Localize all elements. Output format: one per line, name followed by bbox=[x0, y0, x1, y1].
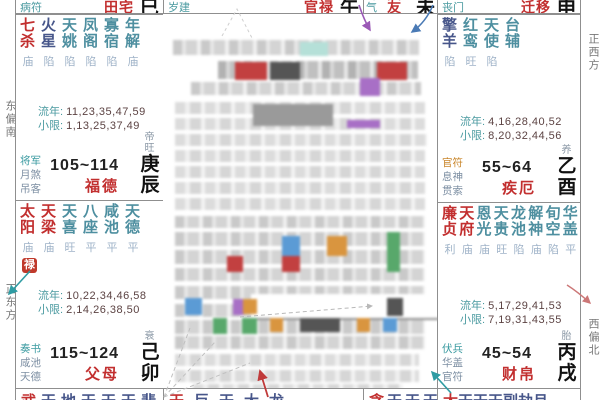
star-name: 七杀 bbox=[20, 18, 36, 50]
xiaoxian-row: 小限: 7,19,31,43,55 bbox=[460, 313, 562, 327]
god-label: 月煞 bbox=[20, 170, 50, 181]
star-brightness: 陷 bbox=[104, 53, 120, 65]
stem-branch: 丙戌 bbox=[557, 342, 577, 384]
palace-strip: 官符息神贯索 55~64 疾厄 bbox=[442, 158, 536, 198]
god-list: 官符息神贯索 bbox=[442, 158, 478, 198]
star-names: 巨天大龙 bbox=[194, 393, 294, 400]
blur-block bbox=[357, 318, 370, 332]
palace-name: 田宅 bbox=[104, 1, 134, 14]
star: 擎羊陷 bbox=[442, 18, 462, 65]
star-brightness: 平 bbox=[125, 239, 141, 251]
blur-block bbox=[185, 298, 202, 315]
stem-branch: 己卯 bbox=[140, 342, 160, 384]
blur-block bbox=[175, 216, 425, 228]
star: 恩光庙 bbox=[477, 206, 493, 253]
god-label: 吊客 bbox=[20, 184, 50, 195]
palace-strip: 丧门 迁移申 bbox=[438, 0, 580, 14]
blur-block bbox=[300, 318, 340, 332]
blur-block bbox=[282, 256, 300, 272]
star-brightness: 庙 bbox=[528, 241, 544, 253]
palace-jie[interactable]: 擎羊陷红鸾旺天使陷台辅 流年: 4,16,28,40,52 小限: 8,20,3… bbox=[437, 14, 581, 203]
star: 龙池陷 bbox=[511, 206, 527, 253]
xiaoxian-row: 小限: 2,14,26,38,50 bbox=[38, 303, 147, 317]
palace-fude[interactable]: 七杀庙火星陷天姚陷凤阁陷寡宿陷年解庙 流年: 11,23,35,47,59 小限… bbox=[15, 14, 164, 201]
palace-strip: 病符 田宅巳 bbox=[16, 0, 163, 14]
stem-branch: 庚辰 bbox=[140, 154, 160, 196]
blur-block bbox=[175, 198, 425, 210]
god-list: 奏书咸池天德 bbox=[20, 344, 50, 384]
lu-transformation-badge: 禄 bbox=[22, 258, 37, 273]
star-name: 擎羊 bbox=[442, 18, 458, 50]
star-list: 擎羊陷红鸾旺天使陷台辅 bbox=[438, 15, 580, 65]
blur-block bbox=[175, 336, 425, 349]
luck-years: 流年: 4,16,28,40,52 小限: 8,20,32,44,56 bbox=[460, 115, 562, 143]
stem-branch: 乙酉 bbox=[557, 156, 577, 198]
blur-block bbox=[377, 62, 407, 80]
star: 天德平 bbox=[125, 204, 145, 251]
star-name: 廉贞 bbox=[442, 206, 458, 238]
star: 咸池平 bbox=[104, 204, 124, 251]
blur-block bbox=[173, 40, 419, 55]
earthly-branch: 巳 bbox=[140, 2, 159, 14]
direction-label-west-northwest: 西偏北 bbox=[585, 318, 600, 357]
star-brightness: 庙 bbox=[125, 53, 141, 65]
life-stage-label: 养 bbox=[562, 145, 573, 156]
star-name: 寡宿 bbox=[104, 18, 120, 50]
blur-block bbox=[191, 82, 421, 95]
star: 火星陷 bbox=[41, 18, 61, 65]
god-label: 奏书 bbox=[20, 344, 50, 355]
star-brightness: 利 bbox=[442, 241, 458, 253]
blur-block bbox=[242, 318, 257, 334]
blur-block bbox=[253, 104, 333, 126]
palace-name: 父母 bbox=[85, 363, 119, 384]
year-god-label: 病符 bbox=[20, 2, 42, 14]
earthly-branch: 午 bbox=[340, 2, 359, 14]
blur-block bbox=[360, 78, 380, 96]
star: 廉贞利 bbox=[442, 206, 458, 253]
palace-name: 福德 bbox=[85, 175, 119, 196]
blur-block bbox=[243, 299, 257, 314]
liunian-row: 流年: 11,23,35,47,59 bbox=[38, 105, 146, 119]
star: 天府庙 bbox=[459, 206, 475, 253]
blur-block bbox=[213, 318, 227, 334]
blur-block bbox=[227, 256, 243, 272]
palace-name: 疾厄 bbox=[502, 177, 536, 198]
blur-block bbox=[327, 236, 347, 256]
palace-cell-qianyi[interactable]: 丧门 迁移申 bbox=[437, 0, 581, 14]
god-list: 将军月煞吊客 bbox=[20, 156, 50, 196]
palace-cell-bottom-2[interactable]: 天巨天大龙 bbox=[163, 388, 364, 400]
star: 太阳庙 bbox=[20, 204, 40, 251]
star-name: 贪 bbox=[369, 393, 387, 400]
star-brightness: 庙 bbox=[477, 241, 493, 253]
god-label: 华盖 bbox=[442, 358, 478, 369]
star: 解神庙 bbox=[528, 206, 544, 253]
god-label: 贯索 bbox=[442, 186, 478, 197]
palace-cell-bottom-3[interactable]: 贪天天天 bbox=[363, 388, 438, 400]
star-name: 火星 bbox=[41, 18, 57, 50]
star: 台辅 bbox=[505, 18, 525, 65]
blur-block bbox=[235, 62, 267, 80]
blur-mosaic bbox=[163, 14, 437, 388]
blur-block bbox=[270, 318, 283, 332]
direction-label-due-west: 正西方 bbox=[585, 33, 600, 72]
star-list: 七杀庙火星陷天姚陷凤阁陷寡宿陷年解庙 bbox=[16, 15, 163, 65]
star-name: 太 bbox=[443, 393, 458, 400]
star-name: 红鸾 bbox=[463, 18, 479, 50]
blur-block bbox=[282, 236, 300, 256]
palace-strip: 晦气 交友未 bbox=[364, 0, 437, 14]
star-names: 天天天副劫月 bbox=[458, 393, 548, 400]
blur-block bbox=[175, 150, 425, 162]
star-brightness: 旺 bbox=[463, 53, 479, 65]
star: 凤阁陷 bbox=[83, 18, 103, 65]
star-name: 咸池 bbox=[104, 204, 120, 236]
liunian-row: 流年: 4,16,28,40,52 bbox=[460, 115, 562, 129]
blur-block bbox=[270, 62, 300, 80]
life-stage-label: 胎 bbox=[562, 331, 573, 342]
liunian-row: 流年: 5,17,29,41,53 bbox=[460, 299, 562, 313]
star-list: 太阳庙天梁庙天喜旺八座平咸池平天德平 bbox=[16, 201, 163, 251]
star: 天姚陷 bbox=[62, 18, 82, 65]
star-name: 年解 bbox=[125, 18, 141, 50]
star: 天梁庙 bbox=[41, 204, 61, 251]
star-name: 太阳 bbox=[20, 204, 36, 236]
redacted-center-panel bbox=[163, 14, 437, 388]
palace-strip: 将军月煞吊客 105~114 福德 bbox=[20, 156, 119, 196]
star-brightness: 陷 bbox=[484, 53, 500, 65]
star: 天喜旺 bbox=[62, 204, 82, 251]
liunian-row: 流年: 10,22,34,46,58 bbox=[38, 289, 147, 303]
star-brightness: 庙 bbox=[459, 241, 475, 253]
god-label: 官符 bbox=[442, 372, 478, 383]
star-name: 旬空 bbox=[546, 206, 562, 238]
star-name: 天姚 bbox=[62, 18, 78, 50]
star: 八座平 bbox=[83, 204, 103, 251]
star: 天贵旺 bbox=[494, 206, 510, 253]
god-label: 咸池 bbox=[20, 358, 50, 369]
star-name: 武 bbox=[21, 393, 41, 400]
palace-name: 迁移 bbox=[521, 1, 551, 14]
palace-name: 官禄 bbox=[304, 1, 334, 14]
earthly-branch: 申 bbox=[557, 2, 576, 14]
star-brightness: 平 bbox=[563, 241, 579, 253]
star: 华盖平 bbox=[563, 206, 579, 253]
star: 天使陷 bbox=[484, 18, 504, 65]
year-god-label: 丧门 bbox=[442, 2, 464, 14]
star-brightness: 旺 bbox=[62, 239, 78, 251]
blur-block bbox=[175, 182, 425, 194]
star-names: 天天天 bbox=[387, 393, 438, 400]
god-label: 官符 bbox=[442, 158, 478, 169]
blur-block bbox=[387, 232, 400, 272]
star-brightness: 庙 bbox=[41, 239, 57, 251]
star-name: 天梁 bbox=[41, 204, 57, 236]
star-name: 八座 bbox=[83, 204, 99, 236]
year-god-label: 岁建 bbox=[168, 2, 190, 14]
star-brightness: 庙 bbox=[20, 239, 36, 251]
star-brightness: 旺 bbox=[494, 241, 510, 253]
palace-name: 财帛 bbox=[502, 363, 536, 384]
blur-white-band bbox=[251, 294, 437, 320]
star-name: 天使 bbox=[484, 18, 500, 50]
star-name: 台辅 bbox=[505, 18, 521, 50]
age-range: 45~54 bbox=[482, 345, 532, 363]
god-label: 天德 bbox=[20, 372, 50, 383]
luck-years: 流年: 11,23,35,47,59 小限: 1,13,25,37,49 bbox=[38, 105, 146, 133]
earthly-branch: 未 bbox=[416, 2, 435, 14]
star-brightness bbox=[505, 53, 521, 65]
star: 七杀庙 bbox=[20, 18, 40, 65]
star-name: 恩光 bbox=[477, 206, 493, 238]
blur-block bbox=[383, 318, 397, 332]
star-brightness: 陷 bbox=[511, 241, 527, 253]
palace-strip: 岁建 官禄午 bbox=[164, 0, 363, 14]
star-brightness: 陷 bbox=[62, 53, 78, 65]
life-stage-label: 帝旺 bbox=[145, 132, 156, 154]
god-label: 息神 bbox=[442, 172, 478, 183]
palace-caibo[interactable]: 廉贞利天府庙恩光庙天贵旺龙池陷解神庙旬空陷华盖平 流年: 5,17,29,41,… bbox=[437, 202, 581, 389]
age-range: 115~124 bbox=[50, 345, 119, 363]
palace-fumu[interactable]: 太阳庙天梁庙天喜旺八座平咸池平天德平 禄 流年: 10,22,34,46,58 … bbox=[15, 200, 164, 389]
age-range: 105~114 bbox=[50, 157, 119, 175]
star-name: 天 bbox=[169, 393, 194, 400]
god-label: 将军 bbox=[20, 156, 50, 167]
star-name: 天喜 bbox=[62, 204, 78, 236]
god-label: 伏兵 bbox=[442, 344, 478, 355]
palace-strip: 奏书咸池天德 115~124 父母 bbox=[20, 344, 119, 384]
star-name: 天府 bbox=[459, 206, 475, 238]
palace-cell-bottom-4[interactable]: 太天天天副劫月 bbox=[437, 388, 581, 400]
star-name: 龙池 bbox=[511, 206, 527, 238]
star-brightness: 陷 bbox=[546, 241, 562, 253]
star-brightness: 陷 bbox=[41, 53, 57, 65]
star-brightness: 陷 bbox=[442, 53, 458, 65]
year-god-label: 晦气 bbox=[366, 0, 387, 14]
star-names: 天地天天天蜚 bbox=[41, 393, 161, 400]
blur-block bbox=[175, 370, 419, 382]
star-name: 华盖 bbox=[563, 206, 579, 238]
god-list: 伏兵华盖官符 bbox=[442, 344, 478, 384]
xiaoxian-row: 小限: 1,13,25,37,49 bbox=[38, 119, 146, 133]
blur-block bbox=[175, 134, 427, 146]
star-brightness: 平 bbox=[104, 239, 120, 251]
blur-block bbox=[387, 298, 403, 316]
star-name: 凤阁 bbox=[83, 18, 99, 50]
star: 红鸾旺 bbox=[463, 18, 483, 65]
star-brightness: 陷 bbox=[83, 53, 99, 65]
ziwei-chart: 东偏南 正东方 正西方 西偏北 病符 田宅巳 岁建 官禄午 晦气 交友未 丧门 … bbox=[0, 0, 600, 400]
star-name: 天贵 bbox=[494, 206, 510, 238]
blur-block bbox=[347, 120, 380, 128]
palace-cell-bottom-1[interactable]: 武天地天天天蜚 bbox=[15, 388, 164, 400]
star-brightness: 庙 bbox=[20, 53, 36, 65]
blur-block bbox=[175, 354, 419, 366]
palace-cell-jiaoyou[interactable]: 晦气 交友未 bbox=[363, 0, 438, 14]
star: 年解庙 bbox=[125, 18, 145, 65]
star-list: 廉贞利天府庙恩光庙天贵旺龙池陷解神庙旬空陷华盖平 bbox=[438, 203, 580, 253]
star-name: 解神 bbox=[528, 206, 544, 238]
luck-years: 流年: 10,22,34,46,58 小限: 2,14,26,38,50 bbox=[38, 289, 147, 317]
star-name: 天德 bbox=[125, 204, 141, 236]
star: 旬空陷 bbox=[546, 206, 562, 253]
palace-name: 交友 bbox=[387, 0, 415, 14]
palace-strip: 伏兵华盖官符 45~54 财帛 bbox=[442, 344, 536, 384]
blur-block bbox=[300, 42, 328, 56]
palace-cell-tianzhai[interactable]: 病符 田宅巳 bbox=[15, 0, 164, 14]
luck-years: 流年: 5,17,29,41,53 小限: 7,19,31,43,55 bbox=[460, 299, 562, 327]
blur-block bbox=[175, 166, 425, 178]
star: 寡宿陷 bbox=[104, 18, 124, 65]
life-stage-label: 衰 bbox=[145, 331, 156, 342]
age-range: 55~64 bbox=[482, 159, 532, 177]
star-brightness: 平 bbox=[83, 239, 99, 251]
palace-cell-guanlu[interactable]: 岁建 官禄午 bbox=[163, 0, 364, 14]
xiaoxian-row: 小限: 8,20,32,44,56 bbox=[460, 129, 562, 143]
